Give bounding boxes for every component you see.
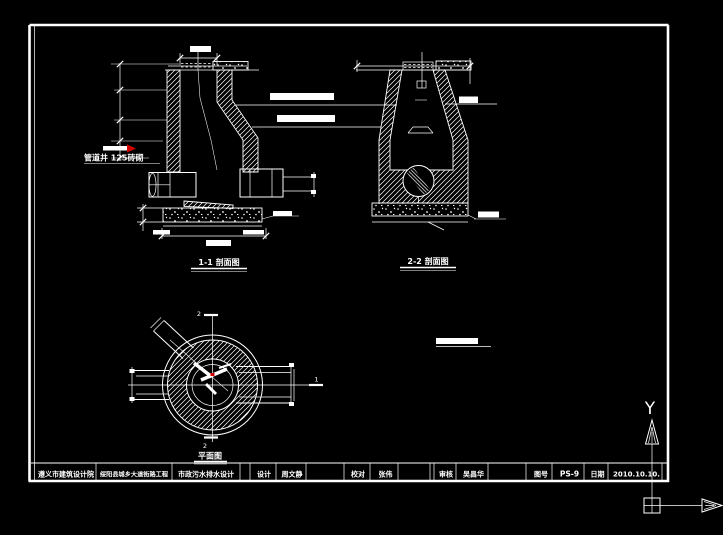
field-reviewer-label: 审核 <box>439 470 453 479</box>
base-slab <box>163 208 262 222</box>
title-block: 遵义市建筑设计院 绥阳县城乡大道街路工程 市政污水排水设计 设计 周文静 校对 … <box>31 463 667 481</box>
pipe-right <box>240 169 283 197</box>
title-project-name: 绥阳县城乡大道街路工程 <box>99 471 169 479</box>
cad-canvas: 管道井 125砖砌 1-1 剖面图 <box>0 0 723 535</box>
drawing-frame <box>29 25 670 482</box>
field-drawing-no-label: 图号 <box>534 470 548 479</box>
channel-hatch <box>184 201 233 209</box>
leader-bar-1 <box>270 93 334 100</box>
base-slab-2 <box>372 203 468 216</box>
note-leader-bar <box>103 146 127 151</box>
cover-slab-stipple-2 <box>436 61 471 70</box>
dimension-text-bar <box>190 46 211 52</box>
cad-drawing: 管道井 125砖砌 1-1 剖面图 <box>0 0 723 535</box>
section1-caption: 1-1 剖面图 <box>198 257 239 267</box>
y-axis-label: Y <box>644 399 656 419</box>
field-designer-label: 设计 <box>257 470 271 479</box>
right-wall-hatch <box>217 70 258 172</box>
leader-bar-4 <box>478 212 499 218</box>
field-designer-value: 周文静 <box>282 470 303 479</box>
field-date-label: 日期 <box>591 470 605 479</box>
plan-view: 2 2 1 平面图 <box>128 310 323 464</box>
pipe-note-label: 管道井 125砖砌 <box>84 153 143 163</box>
field-drawing-no-value: PS-9 <box>560 470 579 479</box>
cover-slab-stipple <box>213 62 248 71</box>
field-checker-value: 张伟 <box>379 470 393 479</box>
red-center-mark <box>211 373 215 376</box>
title-design-content: 市政污水排水设计 <box>178 470 234 479</box>
section2-caption: 2-2 剖面图 <box>407 256 448 266</box>
plan-marker-top: 2 <box>197 310 201 318</box>
plan-marker-right: 1 <box>314 376 318 384</box>
ucs-icon: Y <box>644 399 722 513</box>
section-1-1-view: 管道井 125砖砌 1-1 剖面图 <box>84 46 316 272</box>
field-date-value: 2010.10.10. <box>613 471 660 479</box>
left-wall-hatch <box>167 70 180 172</box>
title-design-institute: 遵义市建筑设计院 <box>38 470 94 479</box>
mid-right-annotation <box>436 338 491 347</box>
field-reviewer-value: 吴昌华 <box>463 470 484 479</box>
leader-bar-2 <box>277 115 335 122</box>
field-checker-label: 校对 <box>351 470 365 479</box>
base-leader-bar <box>273 211 292 216</box>
plan-marker-bottom: 2 <box>203 442 207 450</box>
leader-bar-5 <box>436 338 478 344</box>
leader-bar-3 <box>459 97 478 104</box>
section-2-2-view: 2-2 剖面图 <box>354 52 506 271</box>
leader-annotations <box>236 93 397 127</box>
plan-caption: 平面图 <box>198 452 222 461</box>
red-arrow-icon <box>127 145 136 153</box>
